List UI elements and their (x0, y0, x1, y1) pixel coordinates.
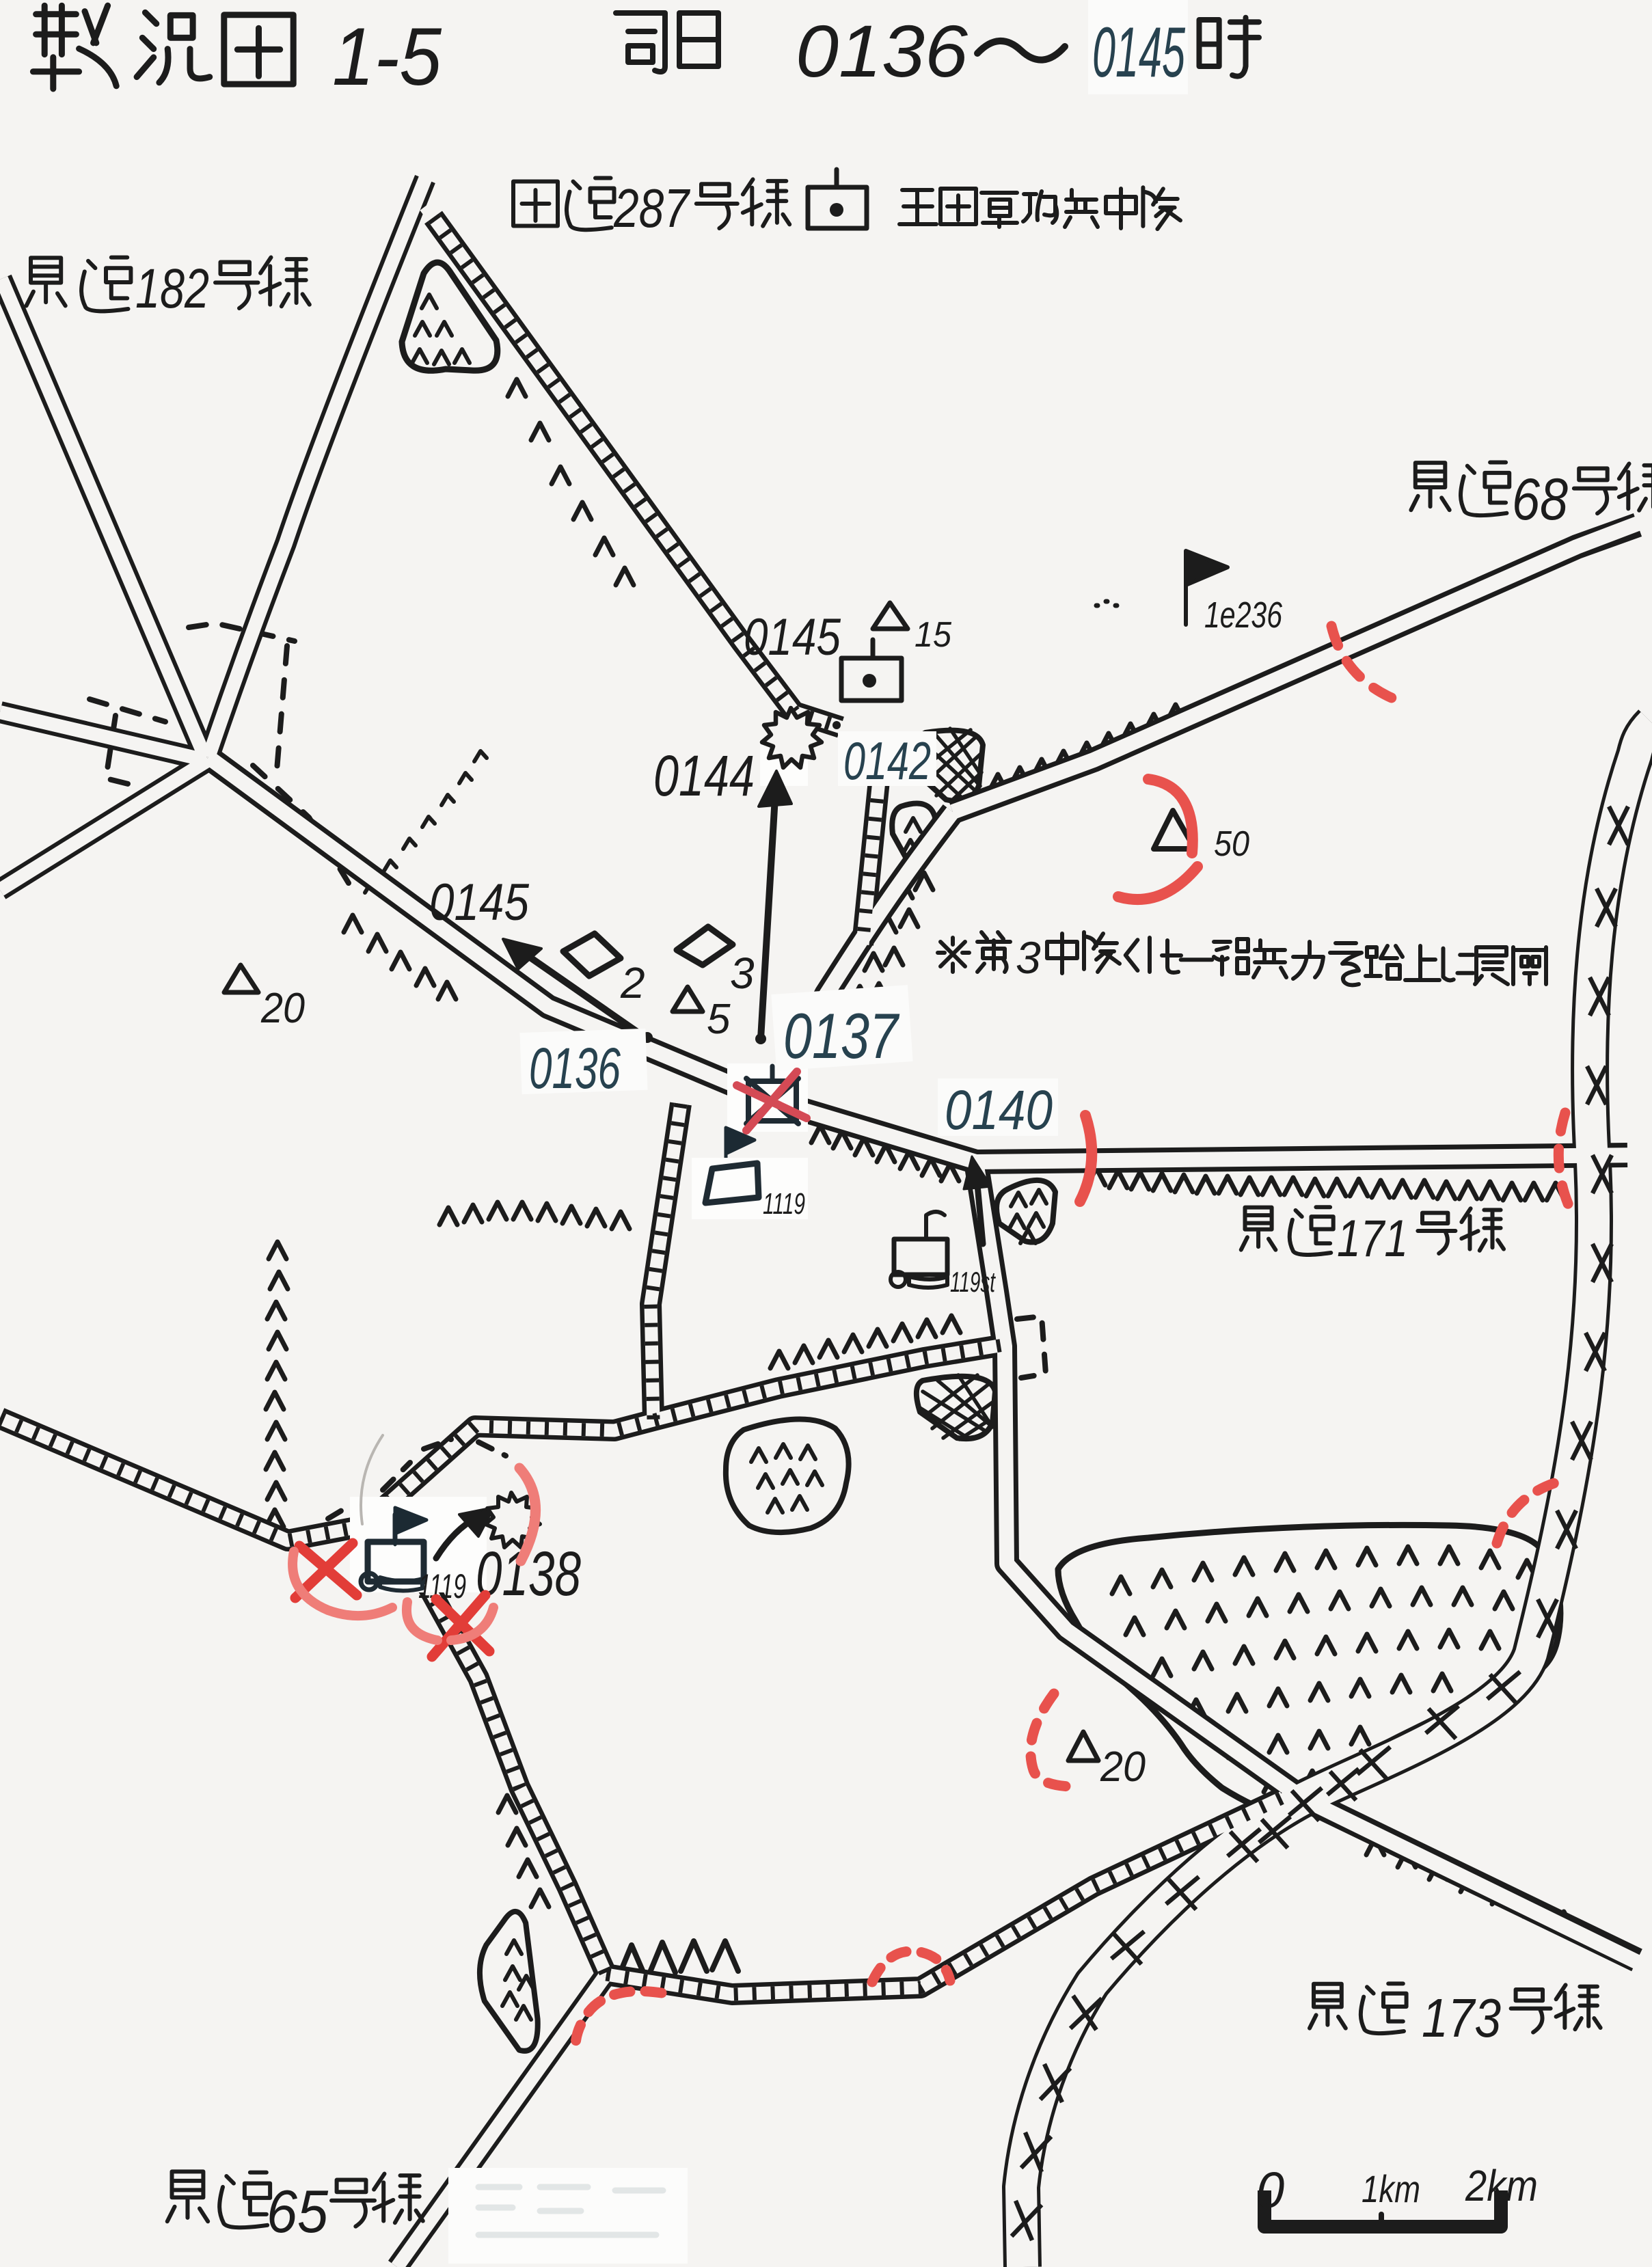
svg-text:0144: 0144 (653, 744, 755, 808)
svg-text:173: 173 (1422, 1987, 1501, 2048)
svg-text:68: 68 (1512, 467, 1568, 532)
svg-text:1-5: 1-5 (332, 11, 442, 103)
svg-text:0: 0 (1256, 2162, 1284, 2218)
svg-text:2: 2 (620, 958, 645, 1007)
svg-text:287: 287 (613, 178, 690, 239)
svg-text:182: 182 (135, 258, 209, 320)
svg-text:119st: 119st (950, 1266, 997, 1298)
svg-text:15: 15 (915, 615, 952, 655)
svg-text:1km: 1km (1362, 2167, 1420, 2210)
svg-text:20: 20 (1100, 1743, 1146, 1791)
svg-text:1e236: 1e236 (1204, 595, 1283, 636)
svg-text:0137: 0137 (783, 1000, 900, 1072)
svg-text:3: 3 (1016, 932, 1041, 983)
svg-text:5: 5 (707, 996, 731, 1043)
svg-text:20: 20 (260, 985, 305, 1032)
svg-text:171: 171 (1337, 1210, 1408, 1268)
svg-text:65: 65 (267, 2177, 329, 2245)
svg-text:2km: 2km (1465, 2161, 1538, 2210)
svg-text:0136: 0136 (529, 1036, 621, 1100)
svg-text:0145: 0145 (744, 608, 841, 666)
svg-text:0142: 0142 (843, 731, 931, 791)
svg-text:0136: 0136 (796, 10, 969, 92)
svg-text:3: 3 (730, 949, 755, 998)
svg-text:0140: 0140 (945, 1079, 1053, 1141)
svg-text:1119: 1119 (763, 1187, 805, 1221)
svg-text:50: 50 (1214, 824, 1249, 864)
svg-text:0145: 0145 (1092, 13, 1186, 92)
svg-text:0145: 0145 (429, 873, 530, 932)
